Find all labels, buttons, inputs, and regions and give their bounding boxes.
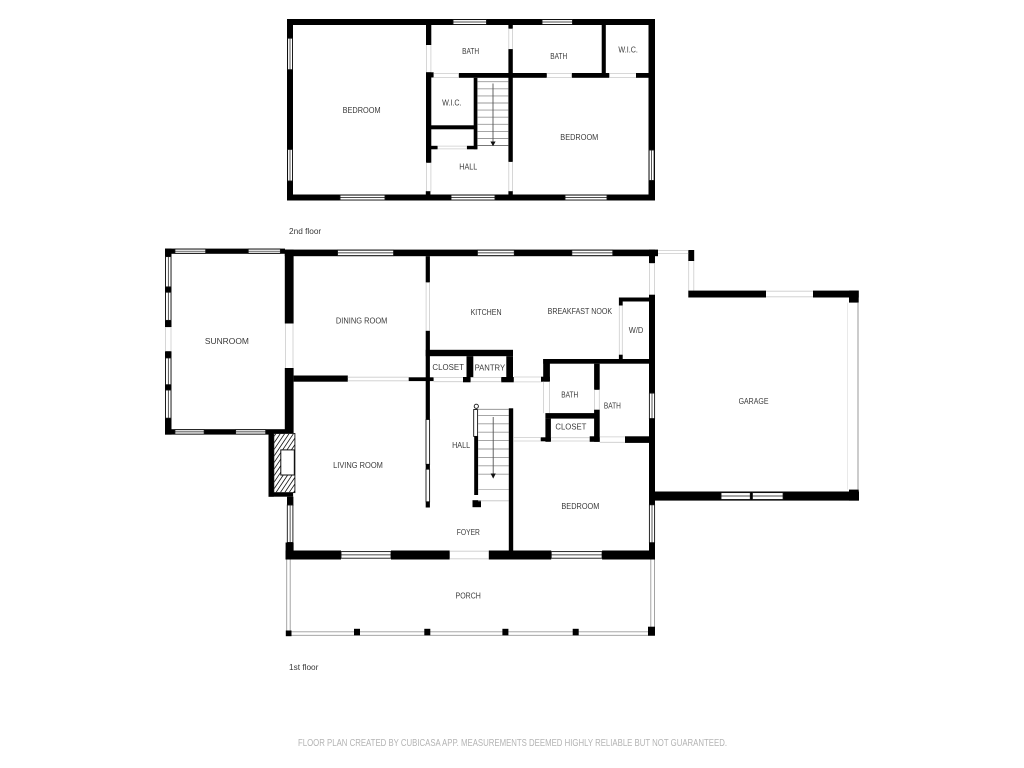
svg-text:BEDROOM: BEDROOM [561,502,599,511]
svg-text:FOYER: FOYER [457,528,480,537]
svg-text:BATH: BATH [561,391,578,400]
svg-text:BATH: BATH [550,52,567,61]
svg-text:W.I.C.: W.I.C. [442,98,462,107]
svg-text:1st floor: 1st floor [289,662,319,672]
svg-text:W.I.C.: W.I.C. [618,45,638,54]
svg-text:PANTRY: PANTRY [475,363,506,372]
svg-text:HALL: HALL [452,441,471,450]
svg-text:PORCH: PORCH [456,592,481,601]
svg-text:FLOOR PLAN CREATED BY CUBICASA: FLOOR PLAN CREATED BY CUBICASA APP. MEAS… [298,738,727,749]
svg-text:LIVING ROOM: LIVING ROOM [333,461,383,470]
svg-text:2nd floor: 2nd floor [289,226,321,236]
svg-text:BREAKFAST NOOK: BREAKFAST NOOK [548,307,613,316]
svg-text:HALL: HALL [459,162,478,171]
svg-text:BATH: BATH [462,47,479,56]
svg-text:GARAGE: GARAGE [739,397,769,406]
svg-text:KITCHEN: KITCHEN [471,308,502,317]
svg-text:BEDROOM: BEDROOM [560,133,598,142]
svg-text:CLOSET: CLOSET [555,423,586,432]
svg-text:BATH: BATH [604,402,621,411]
svg-text:SUNROOM: SUNROOM [205,337,249,346]
svg-text:W/D: W/D [629,326,644,335]
svg-text:DINING ROOM: DINING ROOM [336,317,388,326]
svg-text:BEDROOM: BEDROOM [343,106,381,115]
svg-text:CLOSET: CLOSET [432,363,464,372]
